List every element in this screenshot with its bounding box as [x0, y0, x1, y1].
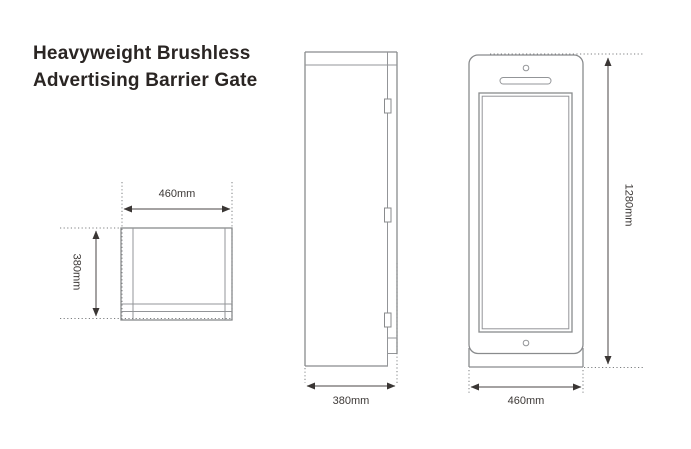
side-view-base-step: [388, 338, 398, 354]
side-view-drawing: 380mm: [305, 52, 397, 407]
page: Heavyweight Brushless Advertising Barrie…: [0, 0, 691, 449]
hinge-top: [385, 99, 392, 113]
display-screen-outer: [479, 93, 572, 332]
front-view-width-dimension: 460mm: [469, 370, 583, 407]
top-view-outline: [121, 228, 232, 320]
screw-hole-top: [523, 65, 529, 71]
side-view-depth-label: 380mm: [333, 395, 370, 407]
front-view-outline: [469, 55, 583, 354]
hinge-bottom: [385, 313, 392, 327]
front-view-drawing: 1280mm 460mm: [469, 54, 643, 407]
side-view-depth-dimension: 380mm: [305, 263, 397, 407]
front-view-width-label: 460mm: [508, 395, 545, 407]
front-view-height-dimension: 1280mm: [490, 54, 643, 368]
drawing-canvas: 460mm 380mm: [0, 0, 691, 449]
top-view-width-label: 460mm: [159, 188, 196, 200]
top-view-drawing: 460mm 380mm: [60, 182, 232, 320]
front-view-height-label: 1280mm: [623, 184, 635, 227]
top-view-width-dimension: 460mm: [122, 182, 232, 320]
top-view-depth-label: 380mm: [71, 254, 83, 291]
screw-hole-bottom: [523, 340, 529, 346]
top-view-depth-dimension: 380mm: [60, 228, 232, 319]
top-view-panel-lines: [121, 228, 232, 320]
indicator-slot: [500, 78, 551, 85]
hinge-middle: [385, 208, 392, 222]
front-view-base: [469, 348, 583, 367]
display-screen-inner: [482, 96, 569, 329]
side-view-outline: [305, 52, 397, 366]
